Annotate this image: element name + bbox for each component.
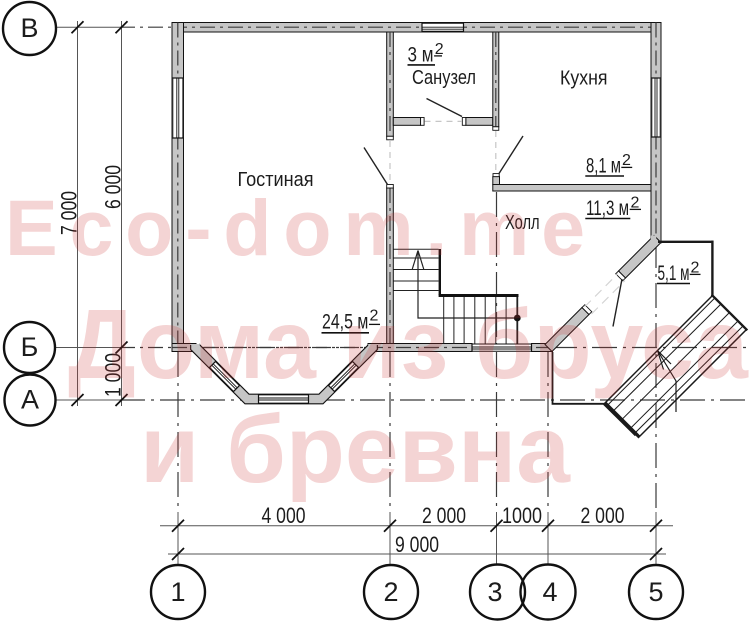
svg-text:5: 5 <box>648 577 663 607</box>
svg-text:9 000: 9 000 <box>395 532 439 557</box>
svg-text:В: В <box>20 13 38 43</box>
svg-text:2: 2 <box>622 152 631 169</box>
svg-text:1000: 1000 <box>502 503 542 528</box>
svg-text:Санузел: Санузел <box>412 66 476 89</box>
svg-text:1: 1 <box>170 577 185 607</box>
svg-text:Кухня: Кухня <box>560 67 608 90</box>
svg-text:А: А <box>21 385 39 415</box>
svg-text:3: 3 <box>487 577 502 607</box>
svg-text:Eco-dom.me: Eco-dom.me <box>5 183 585 272</box>
svg-text:2 000: 2 000 <box>422 503 466 528</box>
svg-text:и бревна: и бревна <box>140 396 571 503</box>
svg-text:4 000: 4 000 <box>262 503 306 528</box>
svg-text:Б: Б <box>21 332 39 362</box>
svg-text:8,1 м: 8,1 м <box>586 155 621 178</box>
svg-text:5,1 м: 5,1 м <box>658 262 690 285</box>
svg-text:2: 2 <box>383 577 398 607</box>
svg-text:Дома из бруса: Дома из бруса <box>68 289 749 399</box>
svg-text:3 м: 3 м <box>408 44 434 67</box>
svg-text:4: 4 <box>542 577 557 607</box>
svg-text:11,3 м: 11,3 м <box>586 197 629 220</box>
svg-text:2 000: 2 000 <box>581 503 625 528</box>
